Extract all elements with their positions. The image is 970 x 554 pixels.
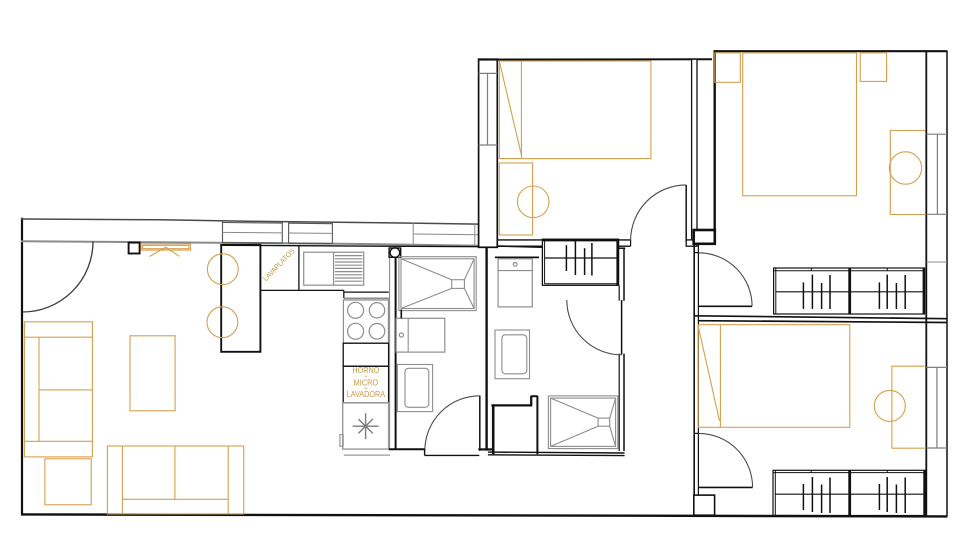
svg-text:LAVAPLATOS: LAVAPLATOS bbox=[261, 246, 297, 283]
svg-text:LAVADORA: LAVADORA bbox=[347, 389, 386, 399]
